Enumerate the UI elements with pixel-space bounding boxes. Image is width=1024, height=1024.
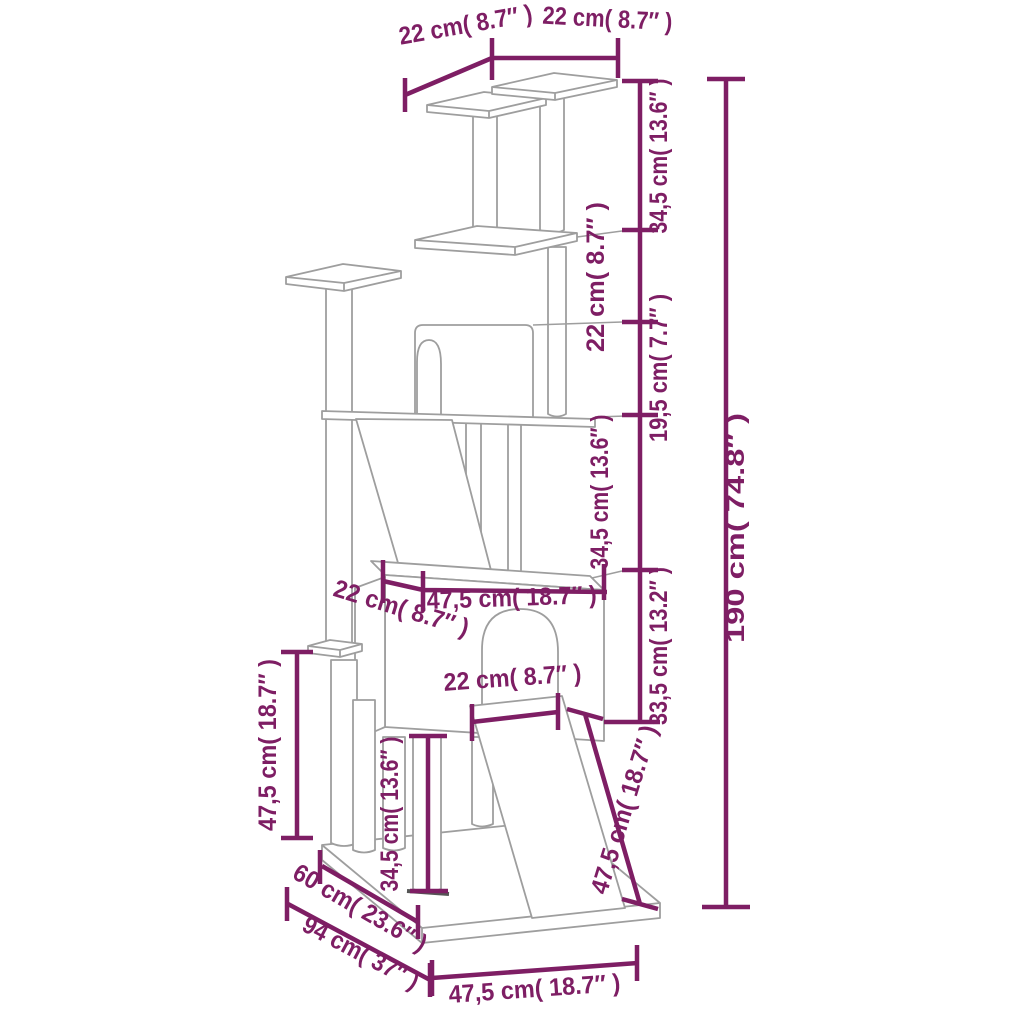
- middle-post-under-shelf: [548, 247, 566, 417]
- condo-box: [415, 325, 533, 418]
- label-top-platform-right: 22 cm( 8.7″ ): [542, 2, 673, 37]
- label-level-platform-to-house-top: 34,5 cm( 13.6″ ): [586, 415, 614, 570]
- label-level-condo-roof-to-platform: 19,5 cm( 7.7″ ): [645, 294, 673, 442]
- dim-top-right-platform: [492, 38, 618, 78]
- dim-left-post: [281, 652, 313, 838]
- lower-left-post-rear: [353, 700, 375, 853]
- label-lower-post-height: 34,5 cm( 13.6″ ): [376, 737, 404, 892]
- label-level-middle-to-condo-roof: 22 cm( 8.7″ ): [582, 202, 610, 352]
- label-house-width: 47,5 cm( 18.7″ ): [426, 581, 597, 615]
- label-level-top-to-middle: 34,5 cm( 13.6″ ): [645, 79, 673, 234]
- label-top-platform-left: 22 cm( 8.7″ ): [397, 0, 535, 51]
- top-left-post: [473, 108, 497, 231]
- top-right-post: [540, 90, 564, 233]
- dimension-diagram: 22 cm( 8.7″ ) 22 cm( 8.7″ ) 34,5 cm( 13.…: [0, 0, 1024, 1024]
- leader-house-top: [592, 571, 622, 578]
- label-house-height: 33,5 cm( 13.2″ ): [645, 567, 673, 725]
- label-left-post-height: 47,5 cm( 18.7″ ): [254, 659, 282, 831]
- post-under-platform-right: [508, 421, 521, 577]
- cat-tree-diagram-canvas: 22 cm( 8.7″ ) 22 cm( 8.7″ ) 34,5 cm( 13.…: [0, 0, 1024, 1024]
- label-total-height: 190 cm( 74.8″ ): [722, 413, 750, 643]
